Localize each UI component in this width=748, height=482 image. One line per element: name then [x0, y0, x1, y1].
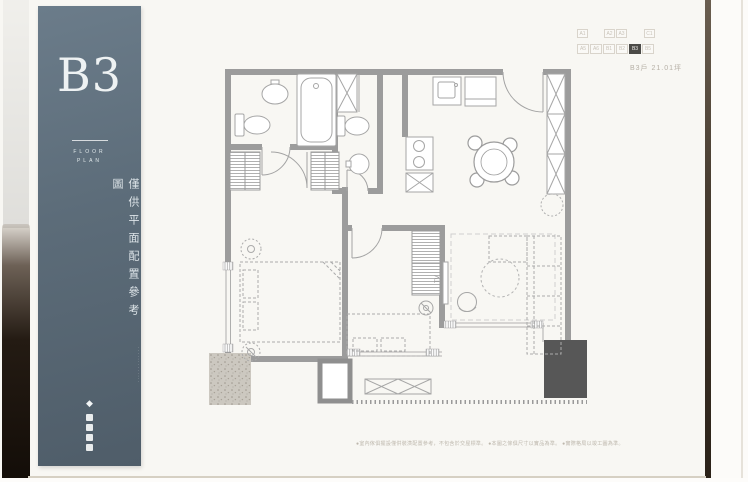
toilet-icon	[337, 116, 369, 136]
unit-box: C1	[644, 29, 655, 38]
ac-platform	[365, 379, 431, 394]
page-edge-left-shadow	[2, 224, 30, 482]
unit-box: A1	[577, 29, 588, 38]
armchair	[458, 293, 477, 312]
sink-icon	[346, 154, 369, 174]
rug	[481, 259, 519, 297]
bedroom-2	[347, 231, 440, 356]
floor-plan-label-line1: FLOOR	[73, 149, 105, 155]
structural-block	[544, 340, 587, 398]
pillow	[243, 302, 258, 330]
brand-logo-block	[86, 434, 93, 441]
wardrobes	[230, 152, 339, 190]
floor-plan: TV	[195, 52, 595, 437]
pillow	[243, 270, 258, 298]
unit-code-title: B3	[38, 52, 141, 98]
ceiling-line	[451, 234, 555, 320]
unit-box: B5	[642, 44, 654, 54]
tv-unit	[443, 262, 448, 304]
unit-box: A3	[616, 29, 627, 38]
unit-area-info: B3戶 21.01坪	[630, 63, 682, 73]
floor-plan-label-line2: PLAN	[77, 158, 102, 164]
nightstand	[241, 239, 261, 259]
unit-box-selected: B3	[629, 44, 641, 54]
vertical-microtext: ·············	[38, 336, 141, 394]
window-sills	[223, 262, 543, 356]
cabinet	[406, 173, 433, 192]
sidebar-panel: B3 FLOOR PLAN 僅供平面配置參考圖 ············· ◆	[38, 6, 141, 466]
brand-logo-block	[86, 424, 93, 431]
page-edge-right	[705, 0, 711, 482]
vertical-caption: 僅供平面配置參考圖	[38, 178, 141, 338]
page-margin-bottom	[0, 478, 748, 482]
toilet-icon	[235, 114, 270, 136]
brand-diamond-icon: ◆	[38, 398, 141, 409]
divider-rule	[72, 140, 108, 141]
plant-icon	[541, 194, 563, 216]
dining-table	[468, 136, 519, 187]
pipe-shaft	[320, 361, 350, 401]
disclaimer-text: ●室內傢俱擺設僅供裝潢配置參考，不包含於交屋標準。 ●本圖之傢俱尺寸以實品為準。…	[356, 440, 656, 447]
stove-icon	[406, 137, 433, 170]
kitchen-sink-icon	[433, 77, 461, 105]
walls	[228, 69, 568, 362]
unit-box: A2	[604, 29, 615, 38]
living-room: TV	[435, 234, 561, 354]
brand-logo-block	[86, 414, 93, 421]
brand-logo-blocks	[38, 414, 141, 451]
page-edge-right-faint-line	[741, 0, 743, 482]
sink-icon	[262, 80, 288, 104]
bathtub-icon	[297, 74, 336, 146]
planter-block	[209, 353, 251, 405]
sofa	[489, 236, 561, 354]
counter	[465, 77, 496, 106]
ceiling-lamp-icon	[419, 301, 433, 315]
unit-box: B1	[603, 44, 615, 54]
master-bedroom	[240, 239, 340, 361]
brand-logo-block	[86, 444, 93, 451]
floor-plan-label: FLOOR PLAN	[38, 148, 141, 165]
bathroom-2	[337, 74, 369, 174]
unit-box: B2	[616, 44, 628, 54]
bathroom-1	[235, 74, 336, 146]
tall-cabinet	[547, 74, 565, 194]
page-edge-left-light	[3, 0, 29, 228]
brochure-photo: B3 FLOOR PLAN 僅供平面配置參考圖 ············· ◆ …	[0, 0, 748, 482]
shower-icon	[337, 74, 359, 112]
tv-label: TV	[435, 275, 441, 283]
